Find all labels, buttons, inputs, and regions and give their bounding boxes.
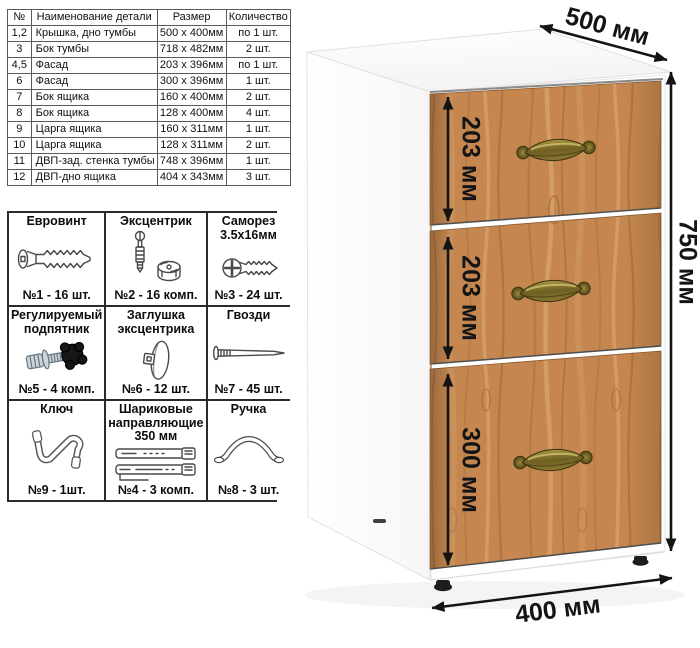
dim-drawer3-label: 300 мм bbox=[456, 427, 484, 513]
instruction-sheet: № Наименование детали Размер Количество … bbox=[0, 0, 700, 648]
dim-drawer1-label: 203 мм bbox=[456, 116, 484, 202]
dim-height-label: 750 мм bbox=[673, 219, 700, 305]
dim-drawer2-label: 203 мм bbox=[456, 255, 484, 341]
cabinet-illustration: 500 мм 750 мм 400 мм 203 мм 203 мм 300 м… bbox=[0, 0, 700, 648]
